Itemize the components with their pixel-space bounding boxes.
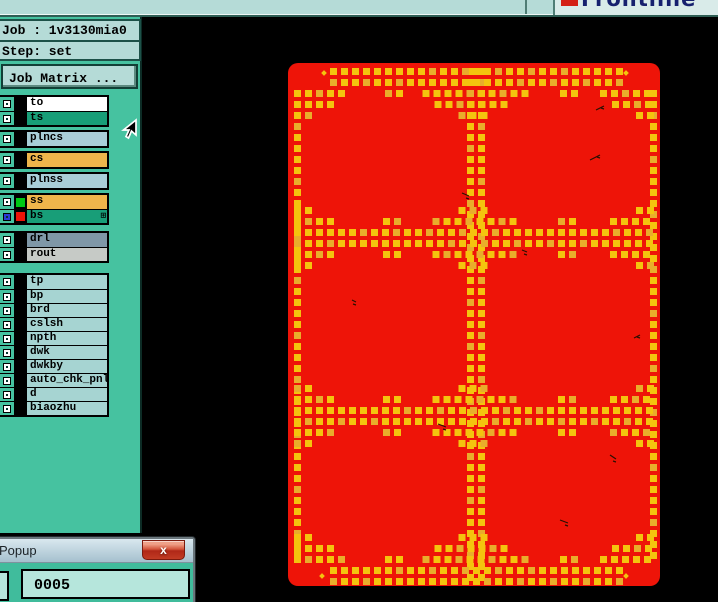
- layer-color-swatch-ss[interactable]: [14, 195, 27, 209]
- layer-checkbox-d[interactable]: [0, 388, 14, 401]
- layer-color-swatch-ts[interactable]: [14, 112, 27, 125]
- layer-color-swatch-tp[interactable]: [14, 275, 27, 289]
- layer-label-plncs[interactable]: plncs: [27, 132, 107, 146]
- layer-row-dwkby[interactable]: dwkby: [0, 359, 107, 373]
- layer-checkbox-ss[interactable]: [0, 195, 14, 209]
- swatch-icon: [16, 236, 25, 245]
- layer-color-swatch-rout[interactable]: [14, 248, 27, 261]
- swatch-icon: [16, 250, 25, 259]
- layer-label-to[interactable]: to: [27, 97, 107, 111]
- checkbox-icon: [4, 116, 10, 122]
- layer-row-bp[interactable]: bp: [0, 289, 107, 303]
- layer-group: drlrout: [0, 231, 109, 263]
- checkbox-icon: [4, 392, 10, 398]
- layer-checkbox-tp[interactable]: [0, 275, 14, 289]
- swatch-icon: [16, 198, 25, 207]
- layer-label-plnss[interactable]: plnss: [27, 174, 107, 188]
- layer-label-cs[interactable]: cs: [27, 153, 107, 167]
- matrix-cell-icon: ⊞: [101, 212, 106, 221]
- layer-label-cslsh[interactable]: cslsh: [27, 318, 107, 331]
- swatch-icon: [16, 292, 25, 301]
- checkbox-icon: [4, 364, 10, 370]
- swatch-icon: [16, 348, 25, 357]
- checkbox-icon: [4, 378, 10, 384]
- layer-row-dwk[interactable]: dwk: [0, 345, 107, 359]
- swatch-icon: [16, 156, 25, 165]
- app-window: Frontline Job : 1v3130mia0 Step: set Job…: [0, 0, 718, 602]
- layer-checkbox-cs[interactable]: [0, 153, 14, 167]
- layer-label-dwk[interactable]: dwk: [27, 346, 107, 359]
- layer-color-swatch-dwk[interactable]: [14, 346, 27, 359]
- checkbox-icon: [4, 157, 10, 163]
- layer-checkbox-ts[interactable]: [0, 112, 14, 125]
- swatch-icon: [16, 376, 25, 385]
- layer-label-rout[interactable]: rout: [27, 248, 107, 261]
- top-menu-bar: Frontline: [0, 0, 718, 17]
- layer-color-swatch-plnss[interactable]: [14, 174, 27, 188]
- job-name-label: Job : 1v3130mia0: [0, 21, 139, 40]
- layer-label-bs[interactable]: bs⊞: [27, 210, 107, 223]
- swatch-icon: [16, 114, 25, 123]
- close-icon[interactable]: x: [142, 540, 185, 560]
- swatch-icon: [16, 404, 25, 413]
- layer-checkbox-bs[interactable]: [0, 210, 14, 223]
- layer-checkbox-plncs[interactable]: [0, 132, 14, 146]
- frontline-logo-icon: [561, 0, 578, 6]
- checkbox-icon: [4, 350, 10, 356]
- layer-checkbox-cslsh[interactable]: [0, 318, 14, 331]
- layer-label-ss[interactable]: ss: [27, 195, 107, 209]
- popup-window: Popup x: [0, 537, 195, 602]
- layer-group: tots: [0, 95, 109, 127]
- swatch-icon: [16, 390, 25, 399]
- swatch-icon: [16, 212, 25, 221]
- layer-checkbox-brd[interactable]: [0, 304, 14, 317]
- checkbox-icon: [4, 136, 10, 142]
- layer-checkbox-rout[interactable]: [0, 248, 14, 261]
- checkbox-icon: [4, 308, 10, 314]
- layer-label-brd[interactable]: brd: [27, 304, 107, 317]
- checkbox-icon: [4, 279, 10, 285]
- frontline-logo: Frontline: [553, 0, 718, 15]
- layer-list: totsplncscsplnssssbs⊞drlrouttpbpbrdcslsh…: [0, 95, 109, 420]
- popup-left-stub-field[interactable]: [0, 571, 9, 601]
- layer-color-swatch-cslsh[interactable]: [14, 318, 27, 331]
- layer-color-swatch-brd[interactable]: [14, 304, 27, 317]
- layer-checkbox-to[interactable]: [0, 97, 14, 111]
- layer-checkbox-auto_chk_pnl[interactable]: [0, 374, 14, 387]
- layer-color-swatch-d[interactable]: [14, 388, 27, 401]
- checkbox-icon: [4, 322, 10, 328]
- layer-color-swatch-to[interactable]: [14, 97, 27, 111]
- layer-row-plncs[interactable]: plncs: [0, 132, 107, 146]
- step-name-label: Step: set: [0, 42, 139, 61]
- swatch-icon: [16, 278, 25, 287]
- layer-row-ts[interactable]: ts: [0, 111, 107, 125]
- layer-label-auto_chk_pnl[interactable]: auto_chk_pnl: [27, 374, 107, 387]
- layer-checkbox-biaozhu[interactable]: [0, 402, 14, 415]
- swatch-icon: [16, 334, 25, 343]
- layer-label-npth[interactable]: npth: [27, 332, 107, 345]
- layer-checkbox-dwk[interactable]: [0, 346, 14, 359]
- checkbox-icon: [4, 252, 10, 258]
- layer-color-swatch-plncs[interactable]: [14, 132, 27, 146]
- layer-row-auto_chk_pnl[interactable]: auto_chk_pnl: [0, 373, 107, 387]
- layer-row-to[interactable]: to: [0, 97, 107, 111]
- layer-checkbox-drl[interactable]: [0, 233, 14, 247]
- layer-label-dwkby[interactable]: dwkby: [27, 360, 107, 373]
- layer-row-bs[interactable]: bs⊞: [0, 209, 107, 223]
- swatch-icon: [16, 362, 25, 371]
- layer-color-swatch-dwkby[interactable]: [14, 360, 27, 373]
- graphic-canvas[interactable]: [142, 17, 718, 602]
- layer-row-drl[interactable]: drl: [0, 233, 107, 247]
- layer-label-d[interactable]: d: [27, 388, 107, 401]
- layer-checkbox-npth[interactable]: [0, 332, 14, 345]
- layer-row-rout[interactable]: rout: [0, 247, 107, 261]
- layer-row-npth[interactable]: npth: [0, 331, 107, 345]
- layer-group: cs: [0, 151, 109, 169]
- checkbox-icon: [4, 237, 10, 243]
- layer-color-swatch-bs[interactable]: [14, 210, 27, 223]
- layer-checkbox-dwkby[interactable]: [0, 360, 14, 373]
- checkbox-icon: [4, 336, 10, 342]
- layer-row-ss[interactable]: ss: [0, 195, 107, 209]
- layer-group: plncs: [0, 130, 109, 148]
- layer-color-swatch-auto_chk_pnl[interactable]: [14, 374, 27, 387]
- checkbox-icon: [4, 199, 10, 205]
- layer-color-swatch-cs[interactable]: [14, 153, 27, 167]
- layer-color-swatch-drl[interactable]: [14, 233, 27, 247]
- checkbox-icon: [4, 101, 10, 107]
- layer-row-cs[interactable]: cs: [0, 153, 107, 167]
- layer-row-d[interactable]: d: [0, 387, 107, 401]
- topbar-separator: [525, 0, 527, 14]
- layer-row-biaozhu[interactable]: biaozhu: [0, 401, 107, 415]
- layer-label-tp[interactable]: tp: [27, 275, 107, 289]
- frontline-logo-text: Frontline: [581, 0, 696, 11]
- layer-label-bp[interactable]: bp: [27, 290, 107, 303]
- popup-title-bar[interactable]: Popup x: [0, 539, 193, 563]
- layer-row-cslsh[interactable]: cslsh: [0, 317, 107, 331]
- job-info-panel: Job : 1v3130mia0 Step: set: [0, 19, 141, 61]
- layer-row-brd[interactable]: brd: [0, 303, 107, 317]
- layer-row-tp[interactable]: tp: [0, 275, 107, 289]
- layer-label-biaozhu[interactable]: biaozhu: [27, 402, 107, 415]
- checkbox-icon: [4, 406, 10, 412]
- popup-body: [0, 563, 193, 602]
- swatch-icon: [16, 320, 25, 329]
- checkbox-icon: [4, 178, 10, 184]
- layer-color-swatch-biaozhu[interactable]: [14, 402, 27, 415]
- layer-group: tpbpbrdcslshnpthdwkdwkbyauto_chk_pnldbia…: [0, 273, 109, 417]
- sidebar: Job : 1v3130mia0 Step: set Job Matrix ..…: [0, 17, 142, 533]
- layer-color-swatch-npth[interactable]: [14, 332, 27, 345]
- layer-row-plnss[interactable]: plnss: [0, 174, 107, 188]
- layer-checkbox-bp[interactable]: [0, 290, 14, 303]
- checkbox-icon: [4, 294, 10, 300]
- swatch-icon: [16, 306, 25, 315]
- layer-color-swatch-bp[interactable]: [14, 290, 27, 303]
- checkbox-icon: [4, 214, 10, 220]
- swatch-icon: [16, 135, 25, 144]
- layer-checkbox-plnss[interactable]: [0, 174, 14, 188]
- swatch-icon: [16, 100, 25, 109]
- layer-group: ssbs⊞: [0, 193, 109, 225]
- layer-label-ts[interactable]: ts: [27, 112, 107, 125]
- cursor-arrow-icon: [113, 118, 139, 144]
- popup-value-input[interactable]: [21, 569, 190, 599]
- layer-label-drl[interactable]: drl: [27, 233, 107, 247]
- layer-group: plnss: [0, 172, 109, 190]
- job-matrix-button[interactable]: Job Matrix ...: [1, 64, 138, 89]
- swatch-icon: [16, 177, 25, 186]
